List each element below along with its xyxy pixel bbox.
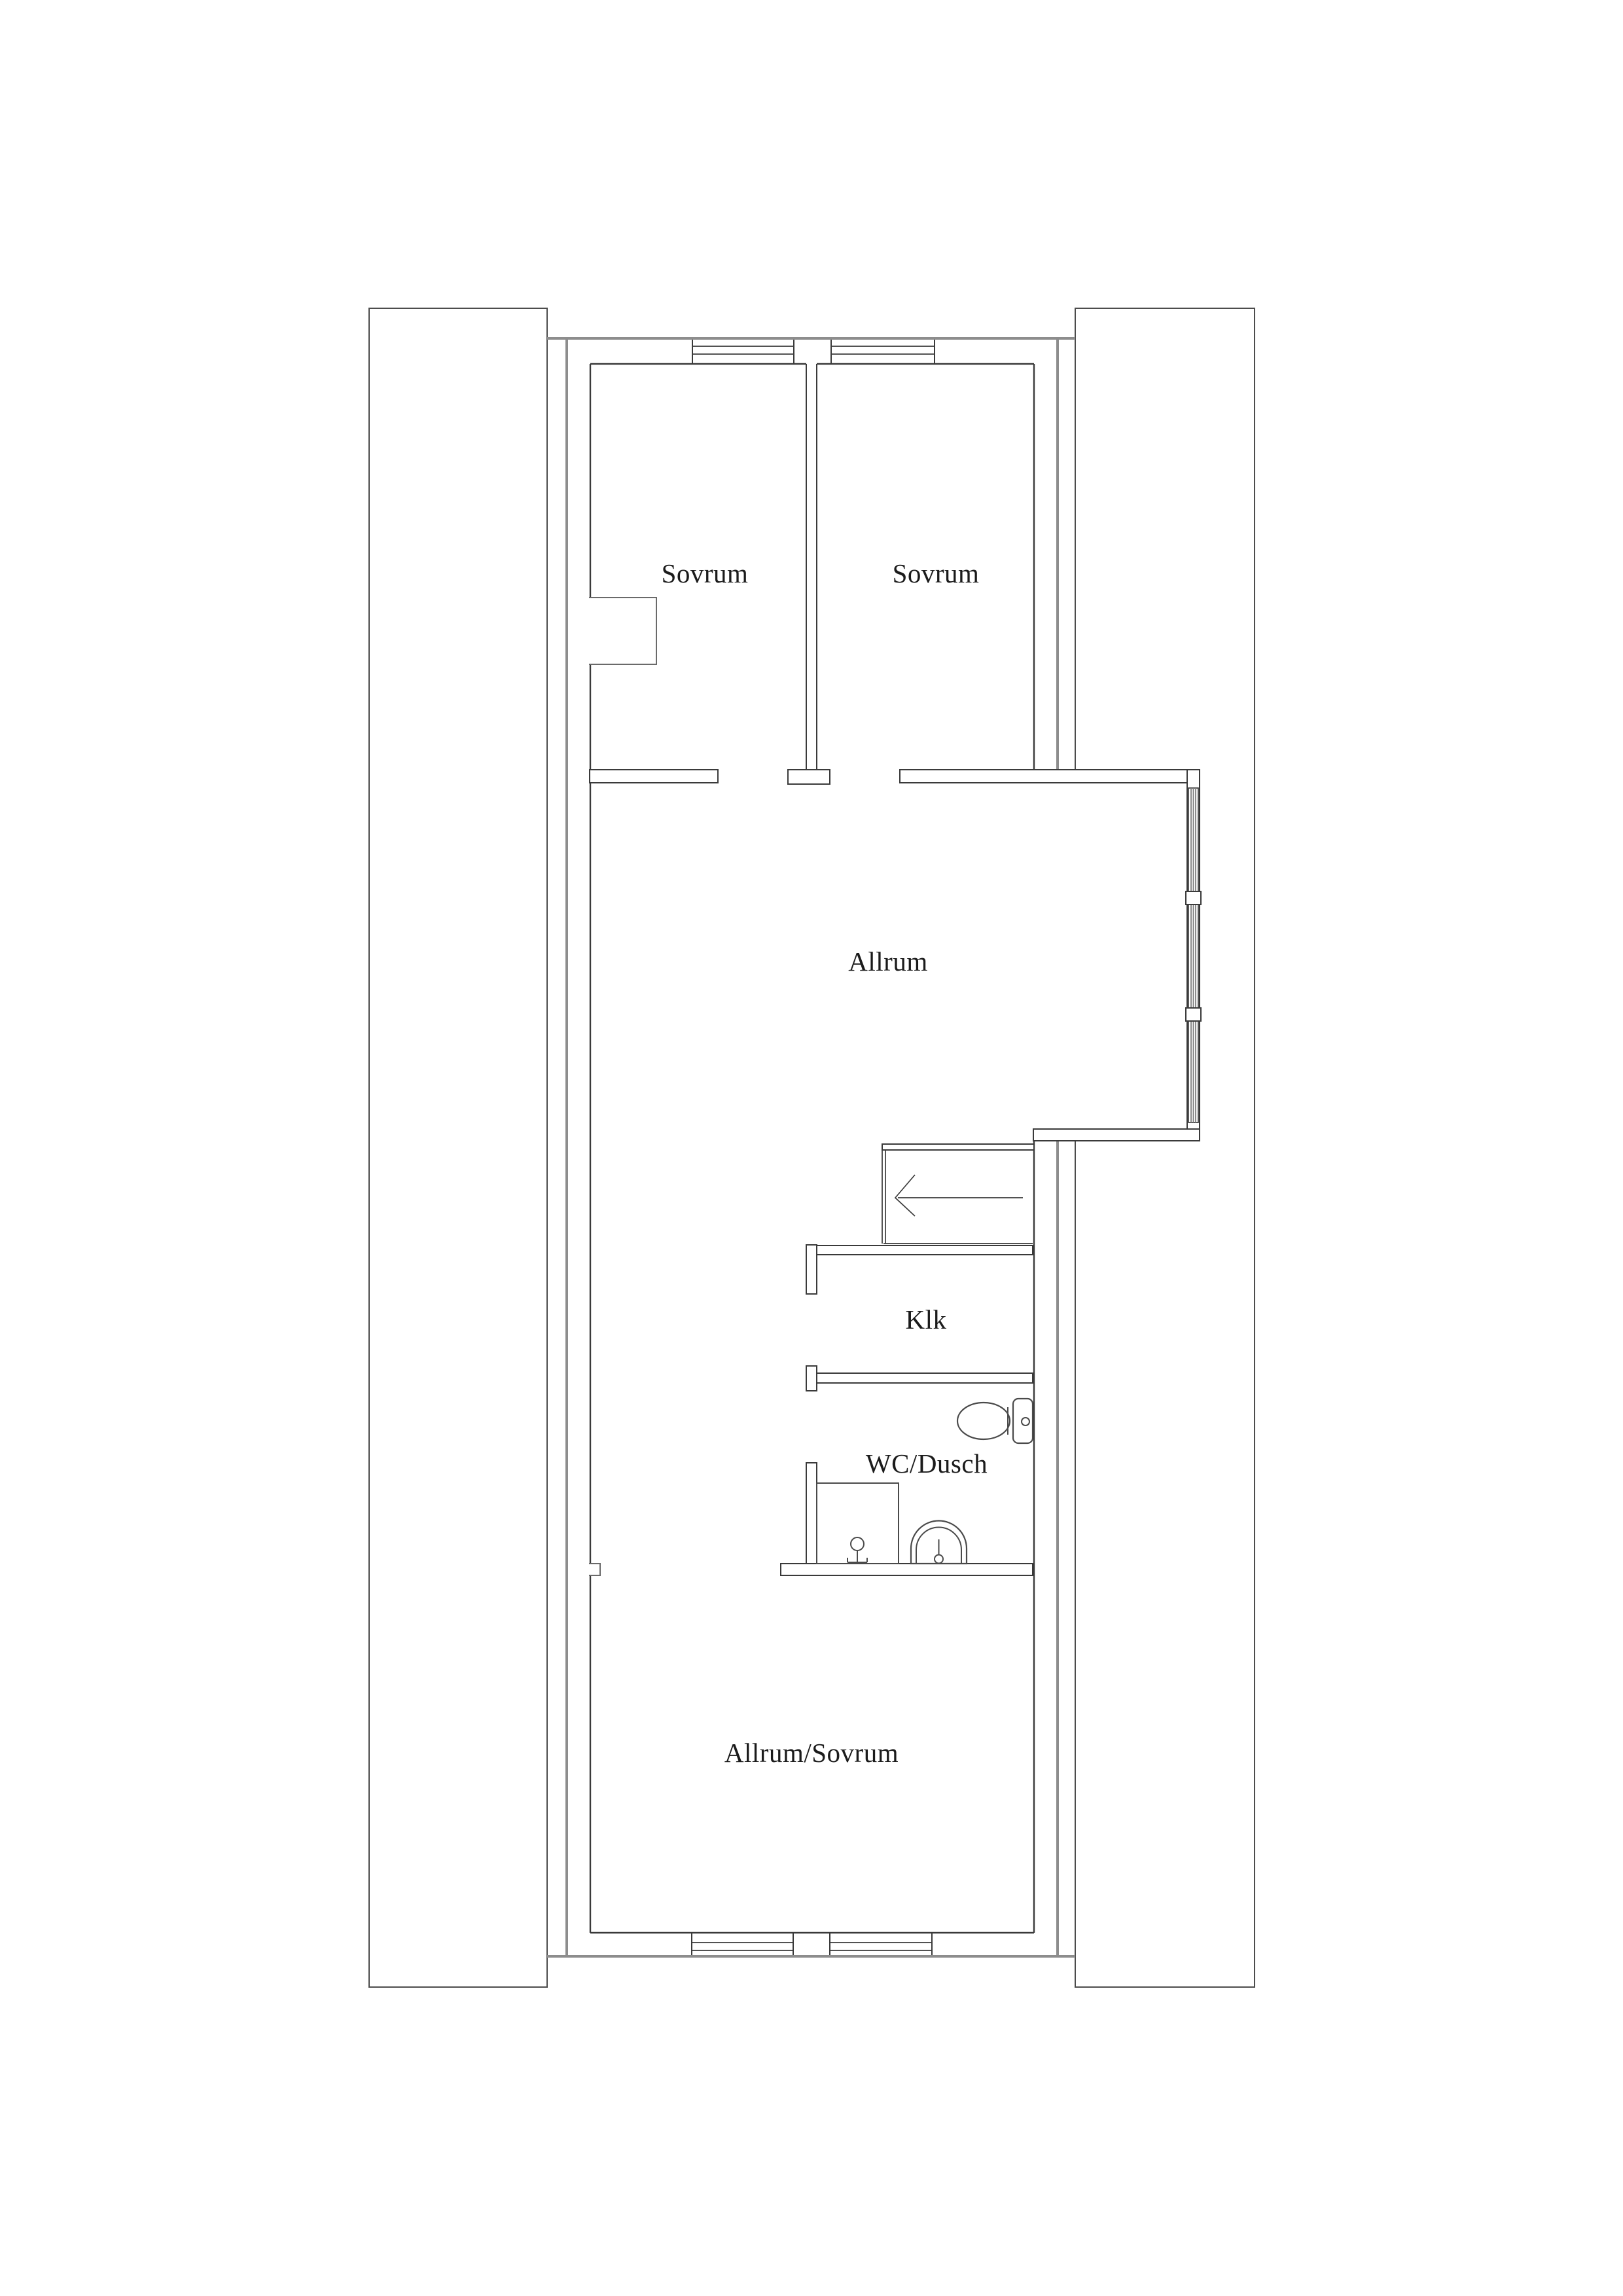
stair-top-wall — [882, 1144, 1034, 1150]
toilet — [957, 1399, 1033, 1443]
window-top-2 — [831, 338, 935, 364]
room-label-allrum: Allrum — [848, 946, 927, 977]
klk-top-wall-cap — [806, 1245, 817, 1294]
wc-left-wall — [806, 1463, 817, 1566]
window-top-1 — [692, 338, 794, 364]
wall-notch — [589, 598, 656, 664]
wc-bottom-wall — [781, 1564, 1033, 1575]
room-label-allrum-sovrum: Allrum/Sovrum — [724, 1738, 899, 1768]
wall-pier — [589, 1564, 600, 1575]
klk-bottom-wall-cap — [806, 1366, 817, 1391]
room-label-sovrum-2: Sovrum — [893, 558, 980, 588]
sovrum2-bottom-and-bay-top-wall — [900, 770, 1200, 783]
klk-top-wall — [817, 1246, 1033, 1255]
bay-bottom-wall — [1033, 1129, 1200, 1141]
toilet-bowl — [957, 1403, 1010, 1439]
room-label-klk: Klk — [906, 1304, 947, 1335]
bay-mullion-1 — [1186, 891, 1201, 905]
klk-bottom-wall — [817, 1373, 1033, 1383]
right-building-outline — [1075, 308, 1255, 1987]
window-bottom-2 — [830, 1933, 932, 1956]
room-label-sovrum-1: Sovrum — [662, 558, 749, 588]
floor-plan-page: Sovrum Sovrum Allrum Klk WC/Dusch Allrum… — [0, 0, 1623, 2296]
left-building-outline — [369, 308, 547, 1987]
window-bottom-1 — [692, 1933, 793, 1956]
bay-mullion-2 — [1186, 1008, 1201, 1021]
bay-overlap-mask — [1035, 771, 1200, 1140]
bedroom-divider-stub — [788, 770, 830, 784]
room-label-wc-dusch: WC/Dusch — [866, 1448, 988, 1479]
sovrum1-bottom-wall — [590, 770, 718, 783]
floor-plan-drawing: Sovrum Sovrum Allrum Klk WC/Dusch Allrum… — [0, 0, 1623, 2296]
